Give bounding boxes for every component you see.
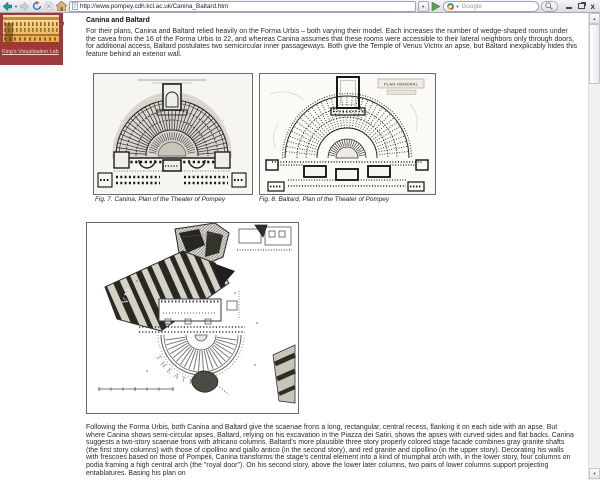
sidebar-link-kvl[interactable]: King's Visualisation Lab [2, 49, 59, 55]
fig7-image [94, 74, 250, 192]
browser-toolbar: ▼ http://www.pompey.cdh.kcl.ac.uk/Canina… [0, 0, 600, 13]
go-button[interactable] [431, 1, 441, 12]
reload-button[interactable] [32, 1, 42, 12]
svg-text:PLAN GÉNÉRAL: PLAN GÉNÉRAL [384, 82, 419, 87]
theater-render-image [3, 15, 59, 46]
fig9-forma-urbis: VM [86, 222, 299, 414]
fig8-caption: Fig. 8. Baltard, Plan of the Theater of … [259, 196, 389, 203]
scrollbar-thumb[interactable] [589, 24, 600, 84]
url-dropdown-button[interactable]: ▼ [418, 1, 429, 12]
fig8-baltard-plan: PLAN GÉNÉRAL [259, 73, 436, 195]
chevron-down-icon: ▼ [421, 1, 425, 12]
home-button[interactable] [56, 1, 67, 12]
page-title: Canina and Baltard [86, 17, 150, 24]
stop-icon [44, 1, 54, 11]
url-text: http://www.pompey.cdh.kcl.ac.uk/Canina_B… [80, 3, 228, 10]
page-content: King's Visualisation Lab Canina and Balt… [0, 13, 600, 480]
stop-button[interactable] [44, 1, 54, 12]
body-paragraph: Following the Forma Urbis, both Canina a… [86, 424, 578, 477]
search-engine-dropdown[interactable]: ▼ [456, 1, 460, 12]
vertical-scrollbar[interactable]: ▲ ▼ [588, 13, 600, 480]
fig8-image: PLAN GÉNÉRAL [260, 74, 433, 192]
page-icon [72, 2, 78, 10]
restore-button[interactable] [578, 3, 585, 9]
search-submit-button[interactable] [541, 1, 558, 12]
scroll-down-button[interactable]: ▼ [589, 468, 600, 479]
window-controls: x [560, 1, 598, 12]
arrow-up-icon: ▲ [593, 16, 597, 21]
google-logo-icon [447, 3, 454, 10]
search-placeholder: Google [462, 3, 482, 10]
intro-paragraph: For their plans, Canina and Baltard reli… [86, 28, 578, 58]
address-bar[interactable]: http://www.pompey.cdh.kcl.ac.uk/Canina_B… [69, 1, 416, 12]
search-icon [545, 2, 553, 10]
close-button[interactable]: x [591, 1, 595, 12]
go-icon [431, 2, 441, 11]
back-button[interactable] [2, 1, 12, 12]
arrow-down-icon: ▼ [593, 471, 597, 476]
back-history-dropdown[interactable]: ▼ [14, 1, 18, 12]
forward-button[interactable] [20, 1, 30, 12]
scroll-up-button[interactable]: ▲ [589, 13, 600, 24]
search-box[interactable]: ▼ Google [443, 1, 539, 12]
fig9-image: VM [87, 223, 296, 411]
reload-icon [32, 1, 42, 11]
sidebar: King's Visualisation Lab [0, 13, 63, 65]
minimize-button[interactable] [566, 7, 572, 9]
fig7-canina-plan [93, 73, 253, 195]
fig7-caption: Fig. 7. Canina, Plan of the Theater of P… [95, 196, 225, 203]
back-icon [2, 2, 12, 11]
forward-icon [20, 2, 30, 11]
home-icon [56, 1, 67, 11]
